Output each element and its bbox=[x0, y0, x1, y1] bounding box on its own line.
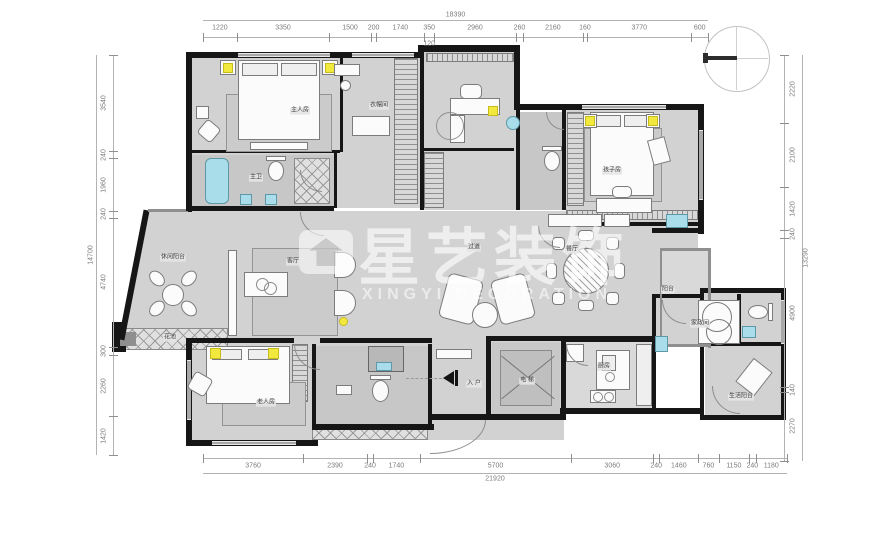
dimension-tick bbox=[109, 355, 118, 356]
downlight bbox=[223, 63, 233, 73]
dimension-seg: 1500 bbox=[342, 25, 358, 32]
dimension-tick bbox=[780, 123, 789, 124]
dimension-seg: 1420 bbox=[101, 428, 108, 444]
dimension-seg: 600 bbox=[694, 25, 706, 32]
watermark-logo bbox=[299, 230, 353, 274]
dimension-seg: 1960 bbox=[101, 177, 108, 193]
pillow bbox=[594, 115, 621, 127]
utility-sink bbox=[655, 336, 668, 352]
cabinet-study-top bbox=[426, 53, 514, 62]
window-kids-right bbox=[699, 130, 703, 200]
dimension-seg: 1740 bbox=[393, 25, 409, 32]
dimension-seg: 2390 bbox=[327, 463, 343, 470]
pillow bbox=[281, 63, 317, 76]
pantry-sink bbox=[666, 214, 688, 228]
wall-study-right bbox=[514, 45, 520, 110]
door-arc-entrance bbox=[430, 420, 486, 454]
wall-jog-right bbox=[652, 228, 704, 233]
entry-arrow-icon bbox=[443, 371, 454, 385]
dimension-seg: 2960 bbox=[467, 25, 483, 32]
dimension-tick bbox=[109, 158, 118, 159]
dimension-seg: 300 bbox=[101, 345, 108, 357]
downlight bbox=[488, 106, 498, 116]
watermark-text-en: XINGYI DECORATION bbox=[362, 286, 612, 304]
floorplan-canvas: 星艺装饰 XINGYI DECORATION 主人房衣帽间主卫孩子房休闲阳台客厅… bbox=[0, 0, 877, 540]
window-kids-room bbox=[582, 105, 666, 109]
dimension-seg: 350 bbox=[423, 25, 435, 32]
dimension-seg: 2270 bbox=[790, 419, 797, 435]
dimension-tick bbox=[719, 454, 720, 463]
toilet bbox=[372, 380, 389, 402]
dimension-tick bbox=[109, 218, 118, 219]
basin bbox=[265, 194, 277, 205]
dimension-seg: 200 bbox=[368, 25, 380, 32]
dimension-tick bbox=[708, 33, 709, 42]
dimension-seg: 240 bbox=[790, 228, 797, 240]
dimension-seg: 240 bbox=[747, 463, 759, 470]
bed-bench bbox=[250, 142, 308, 150]
dimension-chain-top: 1220335015002001740350296026021601603770… bbox=[203, 10, 708, 50]
dimension-seg: 3540 bbox=[101, 95, 108, 111]
dimension-tick bbox=[109, 455, 118, 456]
sink-drain bbox=[605, 372, 615, 382]
wall-living-south-b bbox=[320, 338, 432, 343]
wall-kitchen-bottom bbox=[560, 408, 704, 414]
dimension-tick bbox=[203, 454, 204, 463]
wall-utility-bottom bbox=[700, 415, 786, 420]
dimension-seg: 1740 bbox=[389, 463, 405, 470]
toilet-utility bbox=[748, 305, 768, 319]
dimension-seg: 1180 bbox=[764, 463, 779, 470]
dimension-chain-right: 2220210014202404900140227013290 bbox=[778, 55, 814, 461]
kitchen-sink bbox=[602, 355, 616, 371]
desk-chair-kids bbox=[612, 186, 632, 198]
dimension-seg: 240 bbox=[650, 463, 662, 470]
wall-kitchen-right bbox=[652, 294, 656, 410]
wall-bath-bottom bbox=[312, 424, 434, 430]
dimension-tick bbox=[303, 454, 304, 463]
dimension-tick bbox=[587, 33, 588, 42]
window-cloakroom bbox=[352, 53, 414, 57]
wall-utility-top bbox=[700, 288, 786, 293]
burner bbox=[604, 392, 614, 402]
watermark-logo-house-icon bbox=[309, 238, 343, 266]
dimension-tick bbox=[780, 187, 789, 188]
shower-basin bbox=[376, 362, 392, 371]
balcony-table bbox=[162, 284, 184, 306]
dimension-seg: 2160 bbox=[545, 25, 561, 32]
dimension-tick bbox=[516, 33, 517, 42]
entry-arrow-bar bbox=[455, 370, 458, 386]
dimension-seg: 240 bbox=[101, 209, 108, 221]
closet-corridor bbox=[424, 152, 444, 208]
dimension-chain-left: 3540240196024047403002260142014700 bbox=[86, 55, 118, 455]
dimension-tick bbox=[780, 387, 789, 388]
dimension-sub: 120 bbox=[423, 41, 435, 48]
basin-utility bbox=[742, 326, 756, 338]
dimension-tick bbox=[780, 55, 789, 56]
dimension-seg: 1460 bbox=[671, 463, 687, 470]
wall-study-bottom bbox=[424, 148, 514, 151]
dimension-tick bbox=[237, 33, 238, 42]
dimension-seg: 1420 bbox=[790, 201, 797, 217]
dimension-seg: 260 bbox=[514, 25, 526, 32]
wall-dining-balcony bbox=[660, 248, 662, 346]
dimension-tick bbox=[698, 454, 699, 463]
dimension-tick bbox=[780, 230, 789, 231]
compass-needle bbox=[707, 56, 737, 60]
dimension-tick bbox=[780, 238, 789, 239]
dimension-tick bbox=[780, 392, 789, 393]
dimension-seg: 1150 bbox=[726, 463, 741, 470]
dimension-tick bbox=[371, 33, 372, 42]
wall-kitchen-top bbox=[562, 336, 656, 342]
dimension-tick bbox=[109, 55, 118, 56]
desk-chair bbox=[460, 84, 482, 99]
dimension-overall: 14700 bbox=[88, 245, 95, 264]
dimension-seg: 3760 bbox=[245, 463, 261, 470]
tv-cabinet bbox=[228, 250, 237, 336]
dimension-tick bbox=[109, 151, 118, 152]
bathtub bbox=[205, 158, 229, 204]
watermark-text-cn: 星艺装饰 bbox=[358, 228, 630, 290]
wall-balcony-right-top bbox=[662, 248, 708, 251]
dimension-seg: 3770 bbox=[632, 25, 648, 32]
dimension-overall: 13290 bbox=[803, 248, 810, 267]
wall-elevator-top bbox=[486, 336, 566, 341]
downlight bbox=[648, 116, 658, 126]
dimension-base bbox=[203, 458, 787, 459]
shoe-cabinet bbox=[436, 349, 472, 359]
dimension-chain-bottom: 3760239024017405700306024014607601150240… bbox=[203, 455, 787, 485]
wall-masterbath-bottom bbox=[186, 206, 334, 211]
toilet bbox=[544, 151, 560, 171]
dimension-tick bbox=[420, 454, 421, 463]
dimension-seg: 2100 bbox=[790, 147, 797, 163]
wall-balcony-top-edge bbox=[148, 209, 188, 212]
dimension-base bbox=[113, 55, 114, 455]
dimension-tick bbox=[376, 33, 377, 42]
dimension-tick bbox=[329, 33, 330, 42]
dimension-seg: 3350 bbox=[275, 25, 291, 32]
wall-cloak-study bbox=[420, 52, 424, 210]
round-rug bbox=[436, 112, 464, 140]
dimension-tick bbox=[203, 33, 204, 42]
dimension-seg: 240 bbox=[101, 149, 108, 161]
wall-bath-entry bbox=[428, 344, 432, 426]
toilet-tank-utility bbox=[768, 303, 773, 321]
dimension-seg: 240 bbox=[364, 463, 376, 470]
basin bbox=[240, 194, 252, 205]
side-table bbox=[196, 106, 209, 119]
downlight bbox=[585, 116, 595, 126]
dimension-tick bbox=[571, 454, 572, 463]
dimension-base bbox=[784, 55, 785, 461]
cloak-island bbox=[352, 116, 390, 136]
wardrobe-kids bbox=[567, 112, 584, 206]
dimension-overall: 21920 bbox=[485, 476, 504, 483]
dimension-base2 bbox=[96, 55, 97, 455]
dimension-seg: 4900 bbox=[790, 305, 797, 321]
window-elderly bbox=[212, 441, 296, 445]
dimension-base2 bbox=[203, 473, 787, 474]
wall-masterbath-right bbox=[334, 150, 337, 208]
desk-kids bbox=[596, 198, 652, 213]
wall-elevator-left bbox=[486, 336, 491, 420]
dimension-seg: 5700 bbox=[488, 463, 504, 470]
dimension-tick bbox=[691, 33, 692, 42]
dimension-tick bbox=[780, 461, 789, 462]
dimension-seg: 2220 bbox=[790, 81, 797, 97]
dimension-seg: 4740 bbox=[101, 274, 108, 290]
dimension-tick bbox=[523, 33, 524, 42]
dressing-stool bbox=[340, 80, 351, 91]
bath-cabinet bbox=[336, 385, 352, 395]
dryer bbox=[706, 319, 732, 345]
dimension-seg: 2260 bbox=[101, 378, 108, 394]
entry-dash-line bbox=[406, 378, 442, 379]
dimension-tick bbox=[583, 33, 584, 42]
dimension-tick bbox=[109, 347, 118, 348]
coffee-table bbox=[472, 302, 498, 328]
dimension-seg: 760 bbox=[703, 463, 715, 470]
tv-decor bbox=[264, 282, 277, 295]
dimension-seg: 140 bbox=[790, 384, 797, 396]
kitchen-counter bbox=[636, 344, 652, 406]
wall-balcony-right-bottom bbox=[662, 344, 708, 347]
pillow bbox=[242, 63, 278, 76]
dimension-seg: 3060 bbox=[604, 463, 620, 470]
dimension-seg: 1220 bbox=[212, 25, 228, 32]
dimension-base2 bbox=[203, 20, 708, 21]
wall-living-south-a bbox=[192, 338, 294, 343]
downlight bbox=[268, 348, 279, 359]
dimension-overall: 18390 bbox=[446, 12, 465, 19]
downlight bbox=[210, 348, 221, 359]
wall-left-upper bbox=[186, 52, 192, 212]
burner bbox=[593, 392, 603, 402]
dimension-tick bbox=[109, 211, 118, 212]
compass-needle-flag bbox=[703, 53, 708, 63]
dimension-base bbox=[203, 37, 708, 38]
dimension-seg: 160 bbox=[579, 25, 591, 32]
toilet bbox=[268, 161, 284, 181]
basin bbox=[506, 116, 520, 130]
dressing-table bbox=[334, 64, 360, 76]
window-master-bedroom bbox=[238, 53, 330, 57]
dimension-tick bbox=[109, 416, 118, 417]
wardrobe-cloakroom bbox=[394, 58, 418, 204]
floor-lamp bbox=[339, 317, 348, 326]
